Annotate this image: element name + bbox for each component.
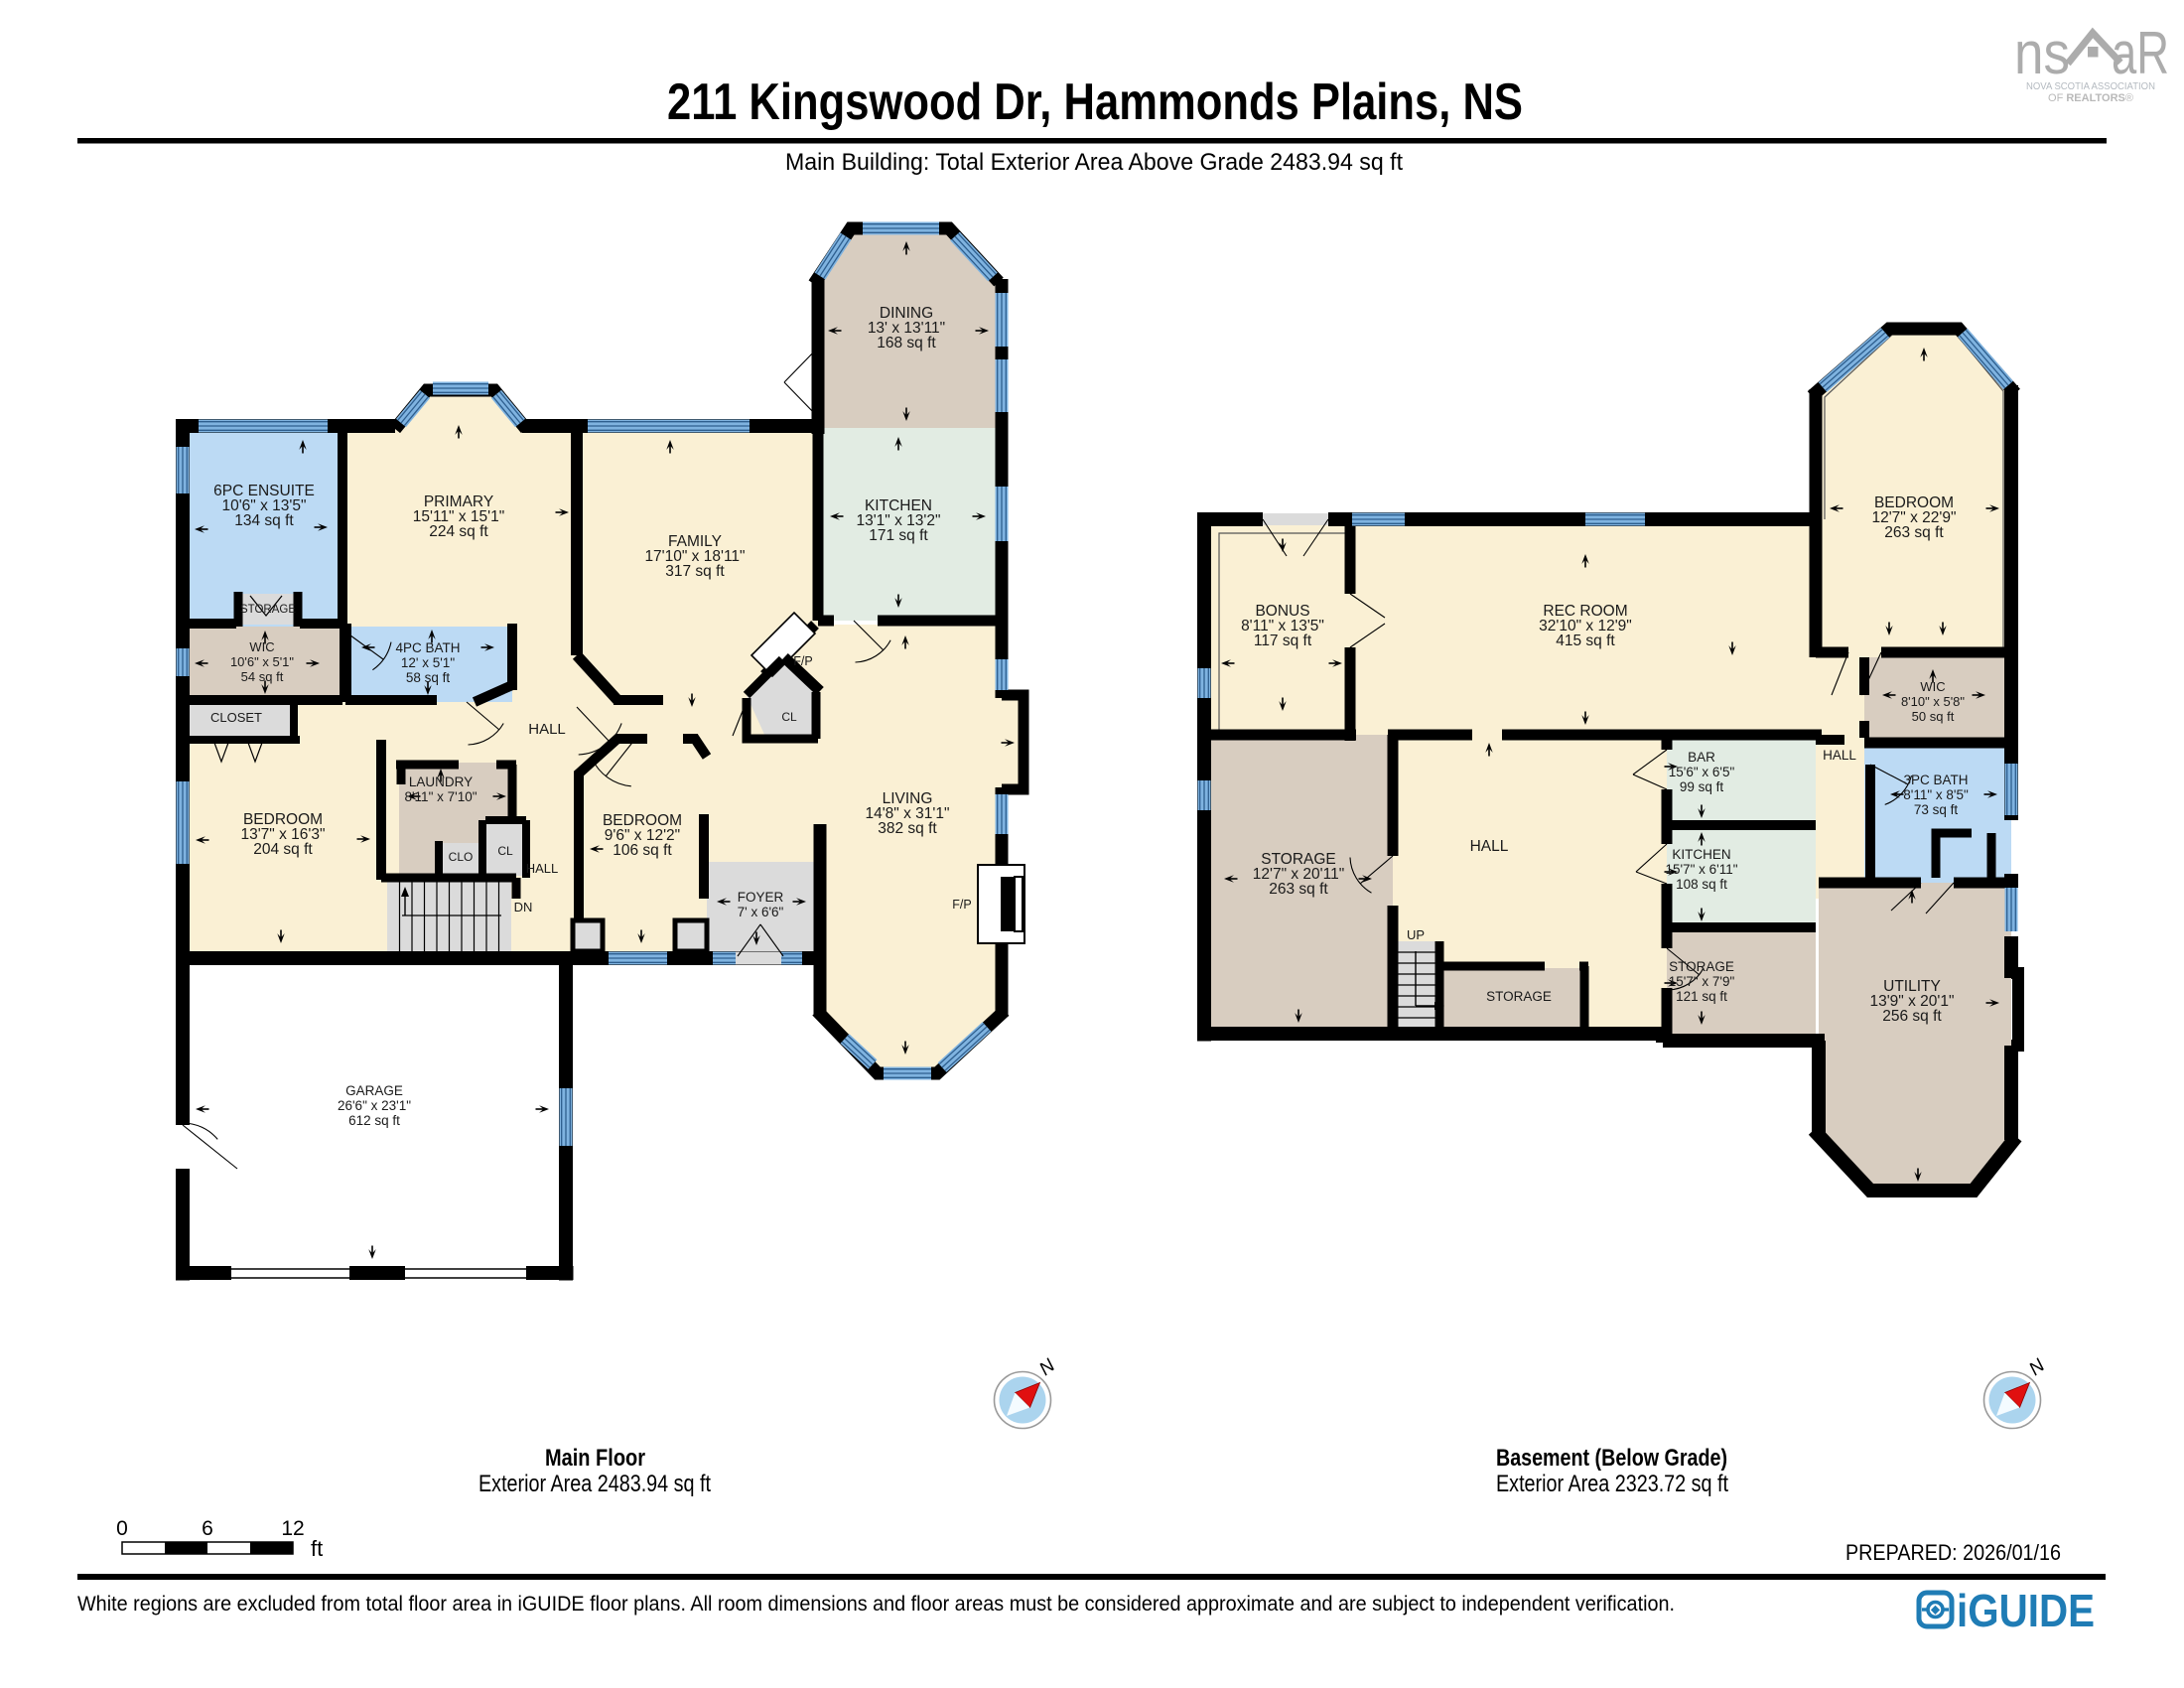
- svg-text:STORAGE: STORAGE: [1486, 989, 1552, 1004]
- svg-text:CL: CL: [497, 844, 513, 858]
- svg-text:HALL: HALL: [1470, 838, 1509, 855]
- svg-text:UP: UP: [1407, 927, 1425, 942]
- svg-text:6: 6: [202, 1517, 213, 1540]
- svg-text:CLOSET: CLOSET: [210, 710, 262, 725]
- svg-text:PREPARED: 2026/01/16: PREPARED: 2026/01/16: [1845, 1540, 2061, 1565]
- svg-text:STORAGE15'7" x 7'9"121 sq ft: STORAGE15'7" x 7'9"121 sq ft: [1669, 959, 1735, 1004]
- svg-text:Exterior Area 2483.94 sq ft: Exterior Area 2483.94 sq ft: [478, 1471, 711, 1497]
- svg-text:HALL: HALL: [528, 721, 566, 738]
- svg-text:ft: ft: [311, 1536, 323, 1561]
- svg-text:aR: aR: [2112, 20, 2169, 86]
- svg-text:iGUIDE: iGUIDE: [1957, 1585, 2095, 1636]
- svg-text:F/P: F/P: [952, 898, 971, 912]
- svg-text:KITCHEN15'7" x 6'11"108 sq ft: KITCHEN15'7" x 6'11"108 sq ft: [1665, 847, 1737, 892]
- svg-text:Exterior Area 2323.72 sq ft: Exterior Area 2323.72 sq ft: [1496, 1471, 1728, 1497]
- svg-text:FOYER7' x 6'6": FOYER7' x 6'6": [738, 890, 784, 919]
- svg-text:LAUNDRY8'11" x 7'10": LAUNDRY8'11" x 7'10": [404, 774, 477, 804]
- svg-text:F/P: F/P: [793, 654, 812, 668]
- svg-text:STORAGE: STORAGE: [240, 604, 296, 616]
- svg-text:HALL: HALL: [1823, 748, 1856, 763]
- svg-text:CL: CL: [781, 710, 797, 724]
- svg-text:HALL: HALL: [526, 861, 559, 876]
- svg-text:211 Kingswood Dr, Hammonds Pla: 211 Kingswood Dr, Hammonds Plains, NS: [667, 73, 1523, 131]
- svg-text:ns: ns: [2014, 20, 2070, 86]
- svg-text:Main Building: Total Exterior: Main Building: Total Exterior Area Above…: [785, 149, 1403, 176]
- svg-text:BEDROOM9'6" x 12'2"106 sq ft: BEDROOM9'6" x 12'2"106 sq ft: [603, 812, 682, 859]
- svg-text:0: 0: [116, 1517, 128, 1540]
- svg-text:DN: DN: [514, 900, 533, 914]
- svg-text:OF REALTORS®: OF REALTORS®: [2048, 92, 2133, 104]
- svg-text:CLO: CLO: [449, 850, 474, 864]
- svg-text:Main Floor: Main Floor: [545, 1445, 645, 1472]
- svg-text:Basement (Below Grade): Basement (Below Grade): [1496, 1445, 1727, 1472]
- svg-text:White regions are excluded fro: White regions are excluded from total fl…: [77, 1593, 1675, 1616]
- svg-text:NOVA SCOTIA ASSOCIATION: NOVA SCOTIA ASSOCIATION: [2026, 80, 2155, 92]
- svg-text:12: 12: [281, 1517, 304, 1540]
